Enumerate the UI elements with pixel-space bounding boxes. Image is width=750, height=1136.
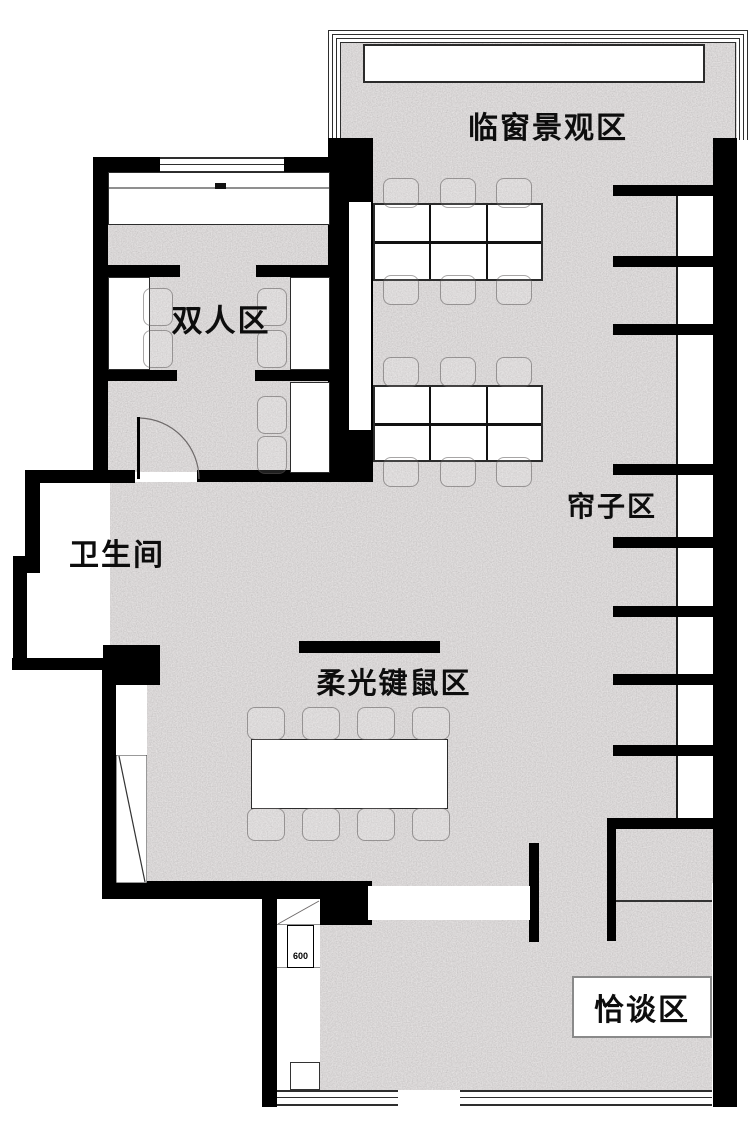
window — [460, 1090, 712, 1106]
curtain-fin — [613, 674, 713, 685]
sliding-door — [368, 886, 530, 920]
wall-L — [607, 829, 616, 941]
negotiation-box: 恰谈区 — [572, 976, 712, 1038]
chair — [496, 275, 532, 305]
chair — [143, 288, 173, 326]
curtain-fin — [613, 745, 713, 756]
chair — [383, 178, 419, 208]
booth — [676, 475, 713, 537]
floor-plan: 600 恰谈区 临窗景观区 双人区 卫生间 帘子区 柔光键鼠区 — [0, 0, 750, 1136]
wall-right — [713, 138, 737, 1107]
area-label-double: 双人区 — [172, 296, 271, 341]
chair — [440, 457, 476, 487]
chair — [357, 808, 395, 841]
meeting-table — [251, 739, 448, 809]
window — [160, 157, 284, 173]
wall-corridor — [262, 897, 277, 1107]
wall-bathroom — [13, 556, 40, 573]
chair — [440, 178, 476, 208]
wall-partition — [256, 265, 330, 277]
chair — [257, 436, 287, 474]
booth — [676, 548, 713, 606]
desk — [290, 382, 330, 473]
booth — [676, 685, 713, 745]
chair — [143, 330, 173, 368]
area-label-bathroom: 卫生间 — [69, 530, 165, 574]
booth — [676, 756, 713, 818]
curtain-fin — [613, 606, 713, 617]
hatch-panel — [277, 899, 320, 926]
chair — [302, 707, 340, 740]
door-jamb — [529, 843, 539, 942]
curtain-fin — [613, 464, 713, 475]
booth — [676, 196, 713, 256]
wall-left-upper — [93, 157, 108, 482]
wall-opening — [349, 202, 371, 430]
chair — [383, 457, 419, 487]
chair — [302, 808, 340, 841]
booth — [676, 335, 713, 464]
wall-room-bottom — [25, 470, 135, 483]
chair — [247, 808, 285, 841]
small-cabinet — [290, 1062, 320, 1090]
area-label-window-view: 临窗景观区 — [468, 103, 628, 147]
dim-600-box: 600 — [287, 925, 314, 968]
chair — [496, 357, 532, 387]
booth — [676, 617, 713, 674]
wall-partition — [108, 370, 177, 381]
curtain-fin — [613, 324, 713, 335]
curtain-fin — [613, 256, 713, 267]
area-label-negotiation: 恰谈区 — [594, 985, 690, 1029]
chair — [247, 707, 285, 740]
chair — [440, 275, 476, 305]
wall-partition — [108, 265, 180, 277]
chair — [412, 707, 450, 740]
wall-left-lower — [102, 670, 116, 897]
curtain-fin — [613, 185, 713, 196]
area-label-soft-light: 柔光键鼠区 — [316, 660, 471, 702]
shaft-panel — [116, 755, 147, 883]
desk-cluster — [373, 385, 543, 462]
wall-partition — [255, 370, 330, 381]
wall-corner-block — [320, 899, 372, 925]
table-edge-line — [616, 900, 712, 902]
wall-bottom-main — [102, 881, 372, 899]
chair — [496, 178, 532, 208]
window — [277, 1090, 398, 1106]
desk-cluster — [373, 203, 543, 281]
wall-bathroom — [25, 470, 40, 556]
curtain-fin — [613, 537, 713, 548]
corridor-left — [116, 687, 147, 751]
wall-bathroom — [13, 573, 27, 670]
wall-bathroom — [12, 658, 103, 670]
partition-bar — [299, 641, 440, 653]
chair — [440, 357, 476, 387]
area-label-curtain: 帘子区 — [567, 485, 657, 525]
chair — [383, 357, 419, 387]
door-swing — [135, 415, 201, 481]
booth — [676, 267, 713, 324]
chair — [383, 275, 419, 305]
dim-600-label: 600 — [293, 951, 308, 967]
chair — [496, 457, 532, 487]
chair — [257, 396, 287, 434]
chair — [412, 808, 450, 841]
window-bench — [363, 44, 705, 83]
long-desk — [108, 172, 330, 225]
chair — [357, 707, 395, 740]
desk — [290, 277, 330, 370]
wall-L — [607, 818, 713, 829]
